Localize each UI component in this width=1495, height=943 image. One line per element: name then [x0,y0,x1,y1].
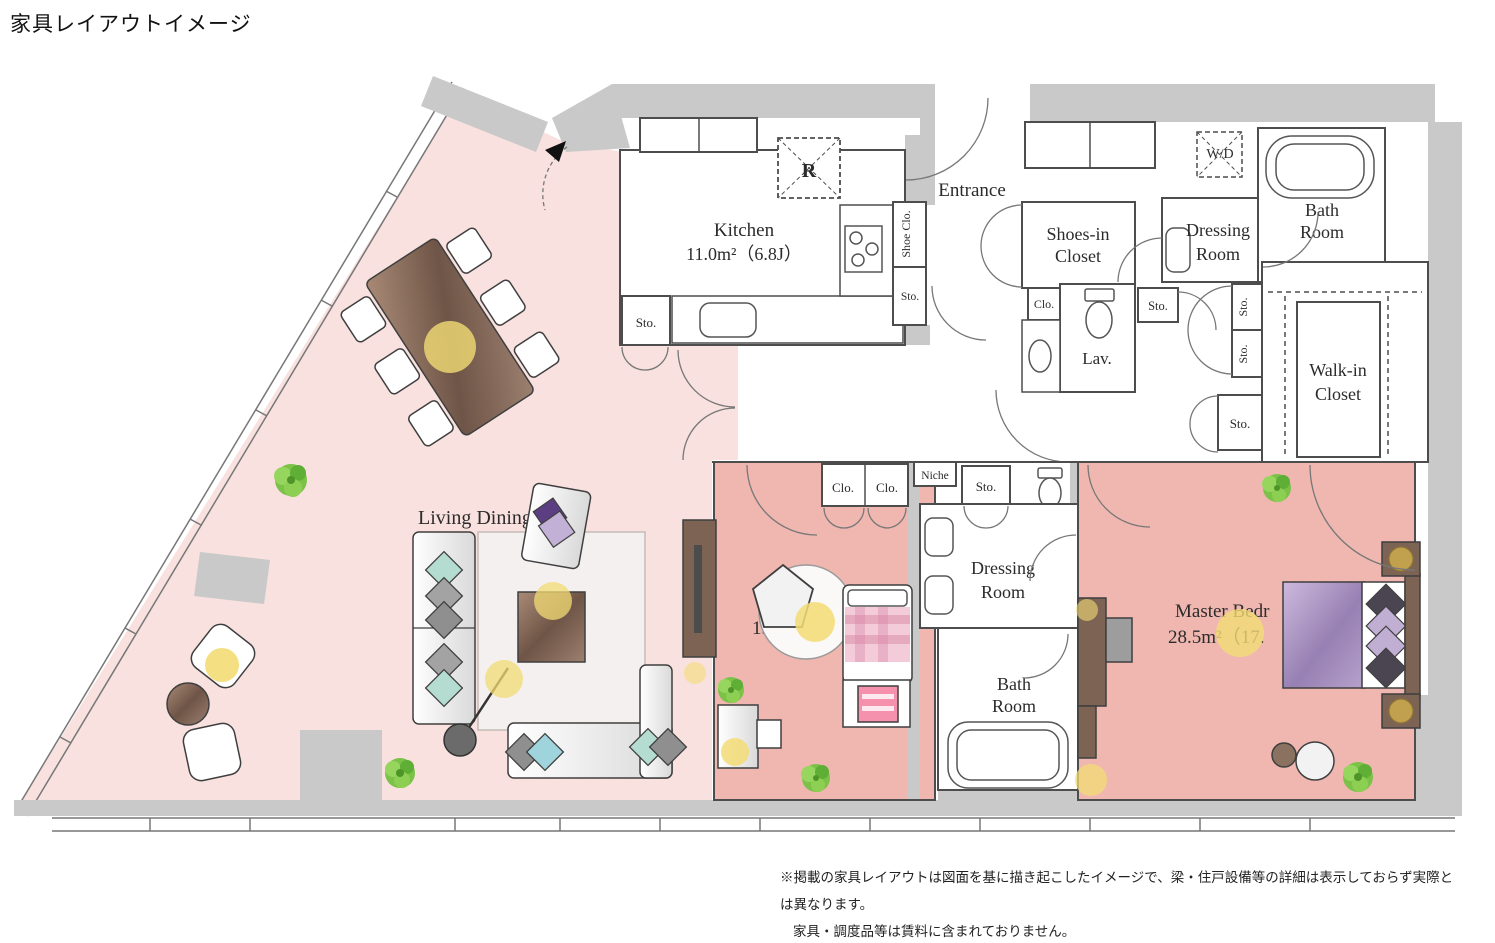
storage-mid-label: Sto. [976,479,997,494]
storage-v2-label: Sto. [1236,344,1250,363]
column-mid [194,552,270,604]
refrigerator-label: R [802,160,817,182]
shoes-in-closet-label-2: Closet [1055,246,1101,266]
room-lav: Lav. Clo. Sto. [1022,284,1178,392]
refrigerator-space: R [778,138,840,198]
toilet-2 [1038,468,1062,508]
niche-label: Niche [921,470,948,482]
room-dressing-top: Dressing Room [1162,198,1258,282]
bath-mid-label-2: Room [992,696,1036,716]
desk-chair-pink [858,686,898,722]
floorplan-page: 家具レイアウトイメージ [0,0,1495,943]
washer-dryer-label: W/D [1206,147,1233,162]
sink-1 [925,518,953,556]
toilet [1085,289,1114,338]
single-bed [843,585,912,683]
room-bath-top: Bath Room [1258,128,1385,282]
corner-pillar [1415,695,1462,816]
pendant-light [424,321,476,373]
clo-box-label: Clo. [1034,297,1054,311]
bath-mid-label-1: Bath [997,674,1031,694]
kitchen-area: 11.0m²（6.8J） [686,244,802,264]
walk-in-label-2: Closet [1315,384,1361,404]
sink-2 [925,576,953,614]
kitchen-label: Kitchen [714,220,775,241]
storage-stack: Sto. Sto. [1232,284,1262,377]
walk-in-label-1: Walk-in [1309,360,1367,380]
storage-v1-label: Sto. [1236,297,1250,316]
storage-1218-label: Sto. [1230,416,1251,431]
column-bottom [300,730,382,816]
page-title: 家具レイアウトイメージ [10,8,252,38]
room-dressing-middle: Sto. Dressing Room [920,466,1078,628]
nightstand-top [1382,542,1420,576]
headboard [1405,574,1420,696]
plant [1343,762,1373,792]
bath-top-label-1: Bath [1305,200,1339,220]
storage-1138-label: Sto. [1148,299,1168,313]
dressing-top-label-1: Dressing [1186,220,1250,240]
plant [385,758,415,788]
armchair-top [521,483,592,570]
dressing-mid-label-2: Room [981,582,1025,602]
nightstand-bottom [1382,694,1420,728]
clo-left-label: Clo. [832,480,854,495]
dressing-top-label-2: Room [1196,244,1240,264]
shoes-in-closet-label-1: Shoes-in [1047,224,1110,244]
kitchen-sink [700,303,756,337]
side-table-round [167,683,209,725]
washer-dryer-space: W/D [1197,132,1242,177]
room-bath-middle: Bath Room [938,628,1078,790]
plant [718,677,744,703]
disclaimer-line-2: 家具・調度品等は賃料に含まれておりません。 [780,918,1460,943]
disclaimer-line-1: ※掲載の家具レイアウトは図面を基に描き起こしたイメージで、梁・住戸設備等の詳細は… [780,864,1460,918]
entrance-label: Entrance [938,180,1006,201]
shoe-closet-label: Shoe Clo. [899,210,913,257]
basin [1029,340,1051,372]
floorplan-drawing: R Sto. Kitchen 11.0m²（6.8J） Entrance Sho… [0,0,1495,943]
cooktop [845,226,882,272]
lav-label: Lav. [1082,349,1112,368]
disclaimer: ※掲載の家具レイアウトは図面を基に描き起こしたイメージで、梁・住戸設備等の詳細は… [780,864,1460,943]
room-kitchen: R Sto. Kitchen 11.0m²（6.8J） [620,118,905,345]
chair-cushion-yellow [205,648,239,682]
bath-top-label-2: Room [1300,222,1344,242]
kitchen-storage-label: Sto. [636,315,657,330]
dressing-mid-label-1: Dressing [971,558,1035,578]
study-desk [843,680,910,727]
master-side-table [1272,743,1296,767]
tv-screen [1106,618,1132,662]
clo-right-label: Clo. [876,480,898,495]
entrance-storage-label: Sto. [901,291,919,303]
